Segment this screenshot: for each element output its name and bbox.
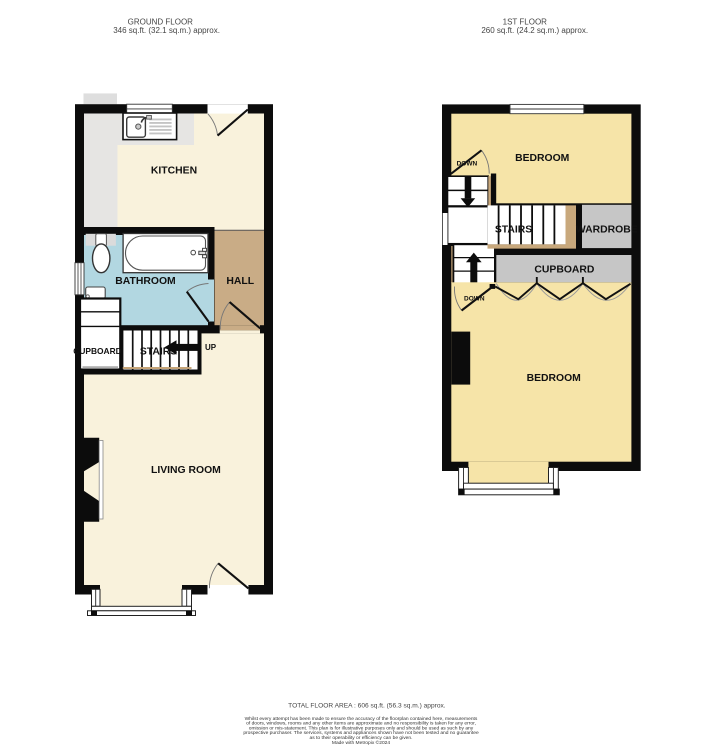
- svg-text:UP: UP: [205, 343, 217, 352]
- svg-text:HALL: HALL: [226, 276, 254, 287]
- svg-text:KITCHEN: KITCHEN: [151, 166, 197, 177]
- svg-text:STAIRS: STAIRS: [495, 224, 532, 235]
- svg-text:BEDROOM: BEDROOM: [515, 153, 569, 164]
- svg-text:LIVING ROOM: LIVING ROOM: [151, 465, 221, 476]
- svg-text:Made with Metropix ©2024: Made with Metropix ©2024: [332, 739, 391, 746]
- svg-text:WARDROBE: WARDROBE: [576, 224, 638, 235]
- svg-text:346 sq.ft. (32.1 sq.m.) approx: 346 sq.ft. (32.1 sq.m.) approx.: [113, 26, 220, 35]
- svg-text:CUPBOARD: CUPBOARD: [534, 265, 595, 276]
- svg-text:BATHROOM: BATHROOM: [115, 276, 175, 287]
- svg-text:DOWN: DOWN: [464, 295, 485, 302]
- svg-text:CUPBOARD: CUPBOARD: [73, 346, 121, 356]
- svg-text:260 sq.ft. (24.2 sq.m.) approx: 260 sq.ft. (24.2 sq.m.) approx.: [481, 26, 588, 35]
- svg-text:TOTAL FLOOR AREA : 606 sq.ft.: TOTAL FLOOR AREA : 606 sq.ft. (56.3 sq.m…: [288, 703, 446, 710]
- svg-text:BEDROOM: BEDROOM: [527, 373, 581, 384]
